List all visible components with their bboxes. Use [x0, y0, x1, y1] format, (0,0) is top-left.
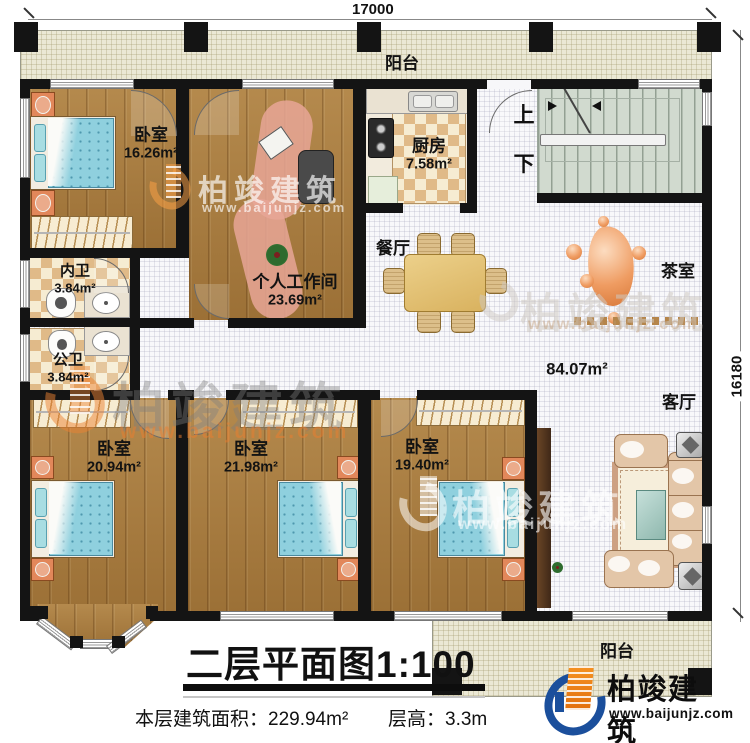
column [14, 22, 38, 52]
pillow [507, 488, 519, 517]
room-label-living: 客厅 [662, 393, 696, 413]
room-label-kitchen: 厨房7.58m² [406, 136, 452, 173]
decorative-stone [580, 274, 594, 288]
room-label-bedroom1: 卧室16.26m² [124, 125, 178, 162]
wardrobe [240, 396, 358, 428]
watermark-logo-icon [420, 476, 437, 516]
top-dimension-line [28, 19, 712, 20]
nightstand [31, 456, 54, 479]
wardrobe [416, 396, 525, 426]
dining-chair [383, 268, 405, 294]
pillow [35, 519, 47, 548]
wall [358, 390, 371, 621]
desk-chair [298, 150, 334, 204]
cushion [672, 534, 692, 549]
cushion [672, 502, 694, 518]
logo-website: www.baijunjz.com [609, 706, 734, 721]
window [20, 98, 30, 178]
wall [460, 203, 477, 213]
room-label-bedroom2: 卧室20.94m² [87, 439, 141, 476]
room-label-workroom: 个人工作间23.69m² [253, 272, 338, 309]
column [184, 22, 208, 52]
cushion [638, 560, 660, 576]
pillow [34, 154, 46, 182]
room-label-inner-bath: 内卫3.84m² [54, 262, 95, 295]
dining-chair [417, 309, 441, 333]
room-label-dining: 餐厅 [376, 239, 410, 259]
stair-well-outline [545, 98, 680, 162]
stairs-up-label: 上 [514, 99, 535, 129]
kitchen-sink [408, 91, 458, 112]
coffee-table [636, 490, 666, 540]
floor-height-text: 层高：3.3m [388, 704, 487, 731]
floor-divider-dots [574, 317, 702, 325]
room-label-bedroom4: 卧室19.40m² [395, 437, 449, 474]
wall [228, 318, 365, 328]
dimension-tick [732, 607, 743, 618]
brand-logo: 柏竣建筑 www.baijunjz.com [543, 664, 718, 740]
pillow [345, 488, 357, 517]
decorative-stone [632, 246, 646, 260]
room-label-public-bath: 公卫3.84m² [47, 351, 88, 384]
top-dimension-label: 17000 [348, 1, 398, 18]
column [529, 22, 553, 52]
sink-basin [435, 95, 454, 108]
bed-sheet [48, 118, 88, 186]
room-label-bedroom3: 卧室21.98m² [224, 439, 278, 476]
window [50, 79, 134, 89]
window [638, 79, 700, 89]
pillow [345, 519, 357, 548]
right-dimension-line [740, 30, 741, 622]
column [697, 22, 721, 52]
dimension-tick [705, 7, 716, 18]
room-label-balcony-top: 阳台 [385, 54, 419, 74]
floor-plan: 17000 16180 [0, 0, 750, 743]
wall [130, 256, 140, 400]
dimension-tick [732, 29, 743, 40]
wall [668, 611, 712, 621]
window [702, 506, 712, 544]
wall [20, 318, 130, 327]
wardrobe [31, 216, 133, 250]
wall [417, 390, 537, 400]
plan-title: 二层平面图1:100 [186, 634, 476, 688]
wall [502, 611, 572, 621]
pillow [35, 488, 47, 517]
window [220, 611, 334, 621]
cushion [608, 556, 630, 572]
nightstand [31, 92, 55, 118]
column [357, 22, 381, 52]
room-label-balcony-bottom: 阳台 [600, 642, 634, 662]
floor-area-text: 本层建筑面积：229.94m² [135, 704, 348, 731]
room-label-hall-area: 84.07m² [546, 360, 607, 379]
wall [20, 248, 177, 258]
title-underline-thin [183, 696, 485, 698]
title-underline [183, 684, 485, 691]
nightstand [502, 457, 525, 480]
window [20, 260, 30, 308]
bay-window-post [146, 606, 158, 619]
side-table [676, 432, 704, 458]
nightstand [337, 456, 360, 479]
pillow [507, 519, 519, 548]
wash-basin [92, 331, 120, 352]
plant [266, 244, 288, 266]
bed-sheet [49, 482, 89, 554]
right-dimension-label: 16180 [728, 352, 745, 402]
wall [537, 193, 712, 203]
wall [176, 390, 188, 621]
decorative-stone [598, 216, 609, 227]
nightstand [31, 190, 55, 216]
wall [226, 390, 380, 400]
stove [368, 118, 394, 158]
fridge [368, 176, 398, 206]
sink-basin [413, 95, 432, 108]
bay-window-post [70, 636, 83, 648]
wall [525, 390, 537, 621]
wall [130, 318, 194, 328]
nightstand [337, 558, 360, 581]
dining-table [404, 254, 486, 312]
stair-handrail [540, 134, 666, 146]
cushion [672, 468, 694, 484]
door-opening [487, 80, 531, 89]
plant [552, 562, 563, 573]
sliding-door [572, 611, 668, 621]
bed-sheet [301, 482, 341, 554]
stair-direction-arrow [592, 101, 601, 111]
window [702, 92, 712, 126]
wall [467, 88, 477, 213]
window [242, 79, 334, 89]
bay-window-post [36, 606, 48, 619]
wall [353, 203, 403, 213]
logo-building-icon [565, 666, 594, 710]
room-label-tea-room: 茶室 [661, 262, 695, 282]
cushion [620, 441, 644, 458]
stair-direction-arrow [548, 101, 557, 111]
dining-chair [451, 309, 475, 333]
bed-sheet [463, 482, 503, 554]
nightstand [502, 558, 525, 581]
dimension-tick [23, 7, 34, 18]
watermark-logo-icon [166, 164, 181, 198]
tv-cabinet [537, 428, 551, 608]
wash-basin [92, 292, 120, 314]
logo-brand-name: 柏竣建筑 [607, 666, 718, 743]
nightstand [31, 558, 54, 581]
logo-block-icon [555, 692, 564, 712]
pillow [34, 124, 46, 152]
stairs-down-label: 下 [514, 148, 535, 178]
bay-window-post [112, 636, 125, 648]
decorative-stone [566, 244, 582, 260]
window [20, 334, 30, 382]
window [394, 611, 502, 621]
